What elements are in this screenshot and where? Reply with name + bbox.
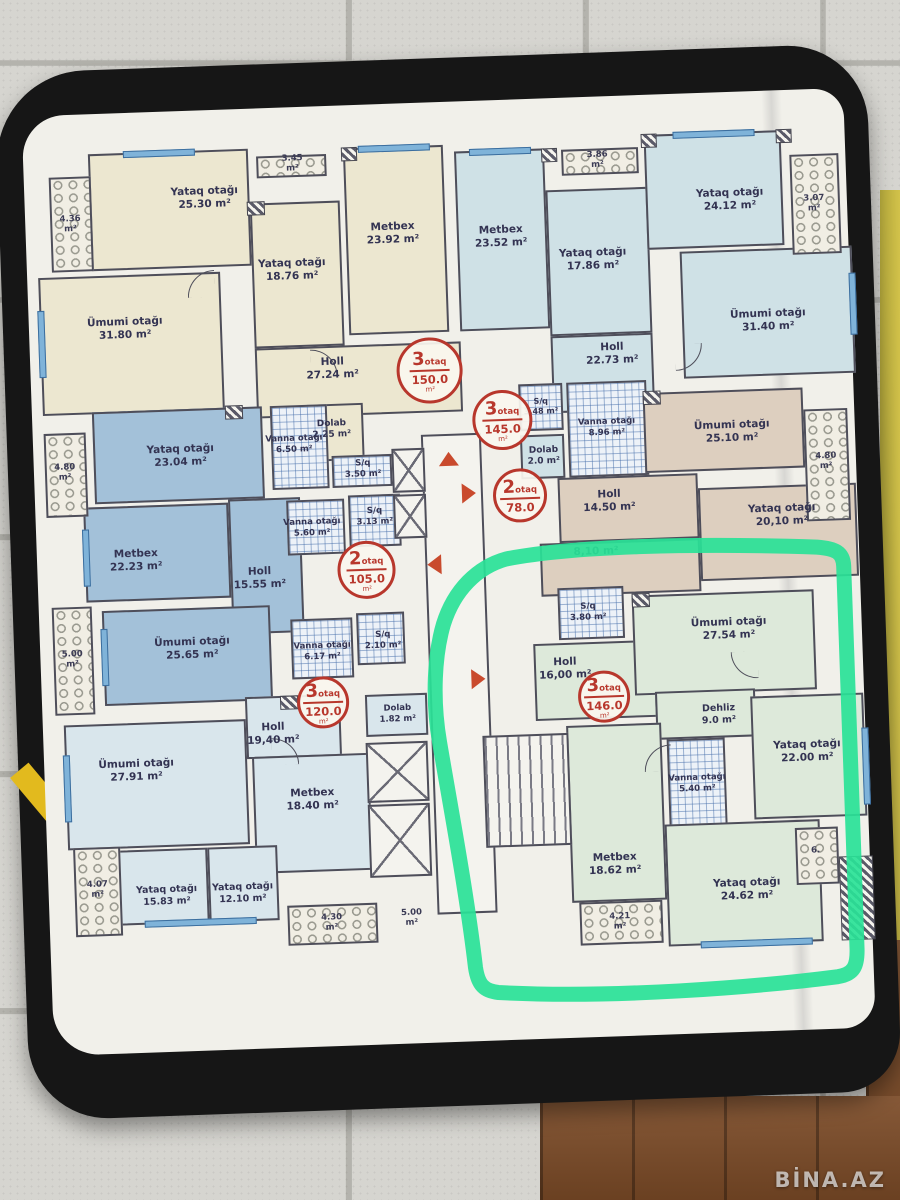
hatched-wall	[640, 133, 656, 148]
unit-area-badge: 2otaq 78.0	[492, 468, 548, 524]
room-label: Ümumi otağı25.10 m²	[694, 418, 770, 447]
room-label: S/q3.80 m²	[570, 601, 607, 624]
room-label: Ümumi otağı27.91 m²	[98, 757, 174, 786]
balcony-label: 3.86 m²	[580, 150, 615, 171]
balcony-label: 4.07 m²	[80, 880, 115, 901]
balcony-label: 6.	[798, 846, 832, 857]
room-label: S/q2.10 m²	[364, 629, 401, 652]
balcony-label: 4.30 m²	[315, 913, 350, 934]
hatched-wall	[632, 593, 650, 608]
unit-area-badge: 2otaq 105.0m²	[337, 540, 397, 600]
room-label: Metbex23.92 m²	[366, 220, 419, 248]
room-label: S/q3.13 m²	[356, 505, 393, 528]
room-label: Yataq otağı17.86 m²	[559, 245, 627, 274]
up-arrow-icon	[438, 452, 458, 467]
room-label: Metbex22.23 m²	[109, 547, 162, 575]
balcony-label: 3.45 m²	[275, 154, 310, 175]
room-label: 8,10 m²	[573, 544, 619, 559]
room-label: Holl27.24 m²	[306, 355, 359, 383]
balcony-label: 4.21 m²	[603, 912, 638, 933]
room-label: Yataq otağı25.30 m²	[170, 184, 238, 213]
room-label: Vanna otağı8.96 m²	[578, 416, 636, 439]
room-label: Holl15.55 m²	[233, 565, 286, 593]
room-label: Yataq otağı24.12 m²	[696, 186, 764, 215]
room-label: Ümumi otağı31.80 m²	[87, 315, 163, 344]
balcony-label: 5.00 m²	[394, 908, 429, 929]
staircase	[482, 733, 572, 848]
room-label: Ümumi otağı25.65 m²	[154, 635, 230, 664]
hatched-wall	[839, 855, 876, 940]
balcony-label: 5.00 m²	[55, 650, 90, 671]
elevator-shaft	[391, 448, 426, 493]
balcony-label: 4.80 m²	[48, 463, 83, 484]
hatched-wall	[225, 405, 243, 420]
room-label: Yataq otağı15.83 m²	[136, 883, 198, 909]
elevator-shaft	[368, 803, 433, 878]
room-label: Yataq otağı24.62 m²	[713, 875, 781, 904]
room-label: Holl14.50 m²	[583, 487, 636, 515]
room-umumi-5	[64, 719, 250, 850]
room-label: Vanna otağı5.40 m²	[668, 772, 726, 795]
room-label: Ümumi otağı31.40 m²	[730, 306, 806, 335]
left-arrow-icon	[427, 554, 442, 574]
balcony-label: 4.36 m²	[53, 215, 88, 236]
room-label: Vanna otağı5.60 m²	[283, 516, 341, 539]
room-label: Yataq otağı20,10 m²	[748, 501, 816, 530]
balcony-label: 3.07 m²	[797, 194, 832, 215]
room-label: Yataq otağı22.00 m²	[773, 737, 841, 766]
brochure: Yataq otağı25.30 m² Ümumi otağı31.80 m² …	[0, 43, 900, 1121]
hatched-wall	[341, 147, 357, 162]
balcony-label: 4.80 m²	[809, 451, 844, 472]
room-label: Yataq otağı12.10 m²	[212, 880, 274, 906]
room-label: Dehliz9.0 m²	[701, 702, 736, 727]
elevator-shaft	[366, 741, 430, 803]
room-label: Metbex18.62 m²	[588, 850, 641, 878]
room-label: Dolab1.82 m²	[379, 703, 416, 726]
room-label: Metbex23.52 m²	[474, 223, 527, 251]
room-label: Yataq otağı23.04 m²	[146, 442, 214, 471]
hatched-wall	[541, 148, 557, 163]
elevator-shaft	[393, 494, 428, 539]
room-label: Ümumi otağı27.54 m²	[691, 615, 767, 644]
room-label: Holl22.73 m²	[585, 340, 638, 368]
right-arrow-icon	[471, 669, 486, 689]
hatched-wall	[247, 201, 265, 216]
room-label: Dolab2.0 m²	[527, 445, 560, 469]
unit-area-badge: 3otaq 120.0m²	[296, 676, 350, 730]
right-arrow-icon	[462, 483, 477, 503]
hatched-wall	[280, 695, 298, 710]
watermark: BİNA.AZ	[775, 1168, 887, 1192]
room-label: Holl19,40 m²	[247, 720, 300, 748]
room-label: Yataq otağı18.76 m²	[258, 256, 326, 285]
room-label: Metbex18.40 m²	[286, 786, 339, 814]
hatched-wall	[642, 390, 660, 405]
room-label: Vanna otağı6.50 m²	[265, 433, 323, 456]
hatched-wall	[775, 129, 791, 144]
room-label: Vanna otağı6.17 m²	[293, 640, 351, 663]
plan-page: Yataq otağı25.30 m² Ümumi otağı31.80 m² …	[21, 88, 875, 1056]
room-label: S/q3.50 m²	[344, 458, 381, 481]
